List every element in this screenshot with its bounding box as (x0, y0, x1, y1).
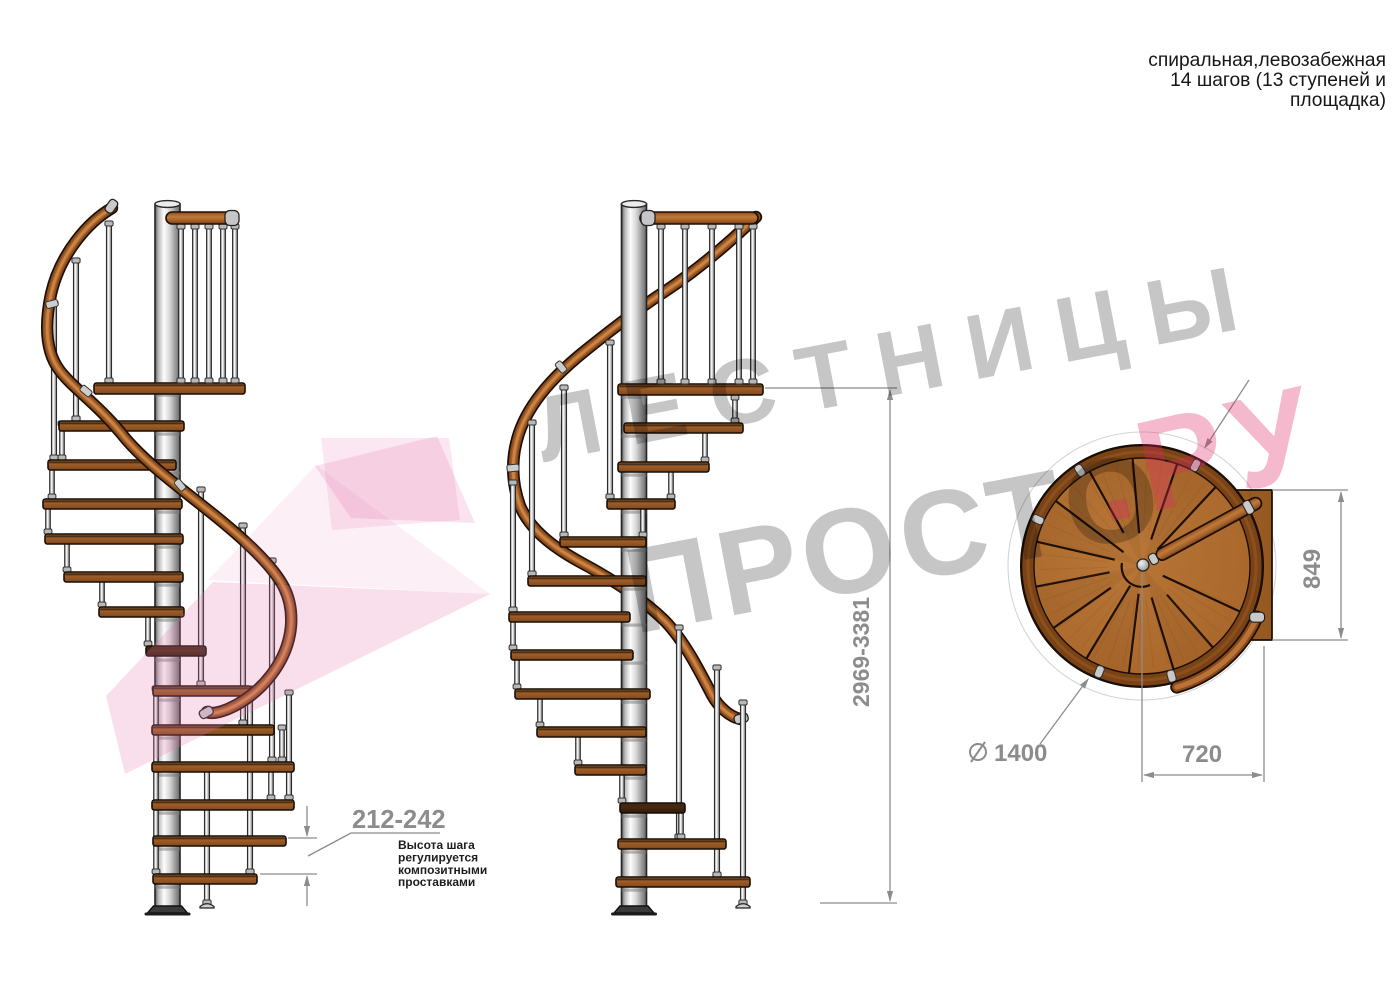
svg-text:849: 849 (1299, 549, 1326, 589)
svg-text:212-242: 212-242 (352, 806, 446, 834)
svg-text:720: 720 (1182, 741, 1222, 768)
svg-text:1400: 1400 (994, 740, 1047, 767)
svg-text:Высота шагарегулируетсякомпози: Высота шагарегулируетсякомпозитнымипрост… (398, 838, 487, 889)
